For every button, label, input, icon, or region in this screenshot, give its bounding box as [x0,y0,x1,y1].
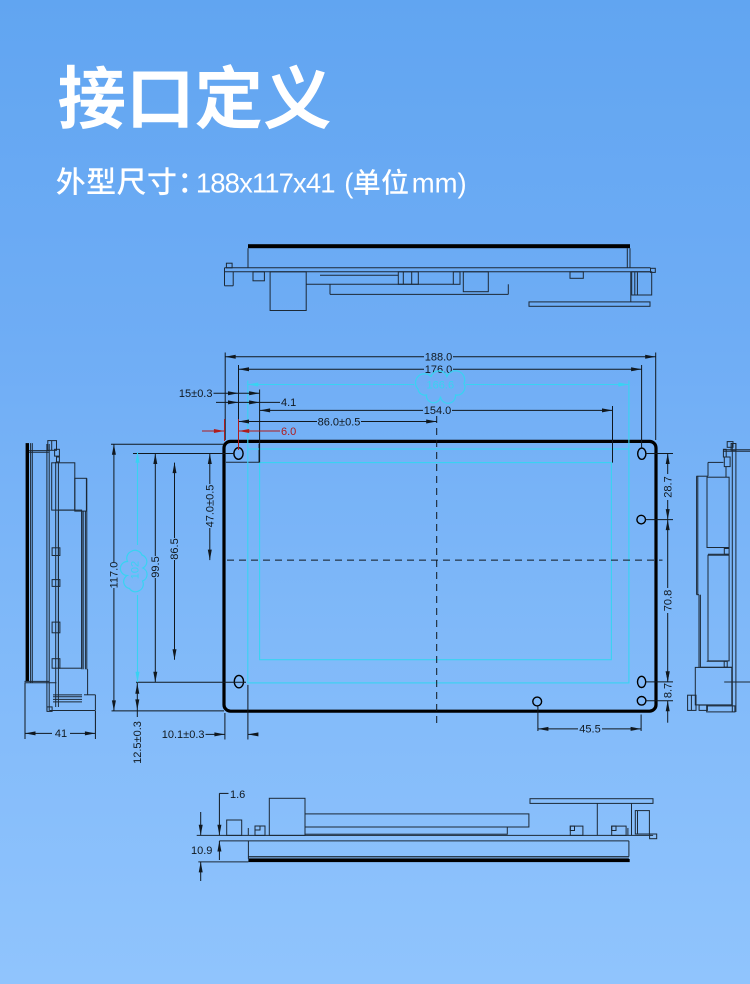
svg-text:47.0±0.5: 47.0±0.5 [205,485,217,528]
svg-text:70.8: 70.8 [662,590,674,611]
svg-text:1.6: 1.6 [230,789,245,801]
svg-text:28.7: 28.7 [662,476,674,497]
svg-text:154.0: 154.0 [424,405,452,417]
svg-text:45.5: 45.5 [579,724,600,736]
svg-text:8.7: 8.7 [662,683,674,698]
svg-text:102: 102 [130,561,142,579]
svg-text:166.6: 166.6 [427,379,455,391]
svg-text:4.1: 4.1 [281,397,296,409]
svg-text:86.5: 86.5 [169,538,181,559]
svg-text:86.0±0.5: 86.0±0.5 [318,416,361,428]
svg-text:6.0: 6.0 [281,426,296,438]
svg-text:(: ( [344,168,353,199]
svg-text:41: 41 [55,728,67,740]
svg-text:12.5±0.3: 12.5±0.3 [132,721,144,764]
svg-text:15±0.3: 15±0.3 [179,388,213,400]
svg-text:mm): mm) [412,168,467,199]
svg-text:188x117x41: 188x117x41 [196,168,335,199]
svg-text:99.5: 99.5 [150,556,162,577]
svg-text:117.0: 117.0 [109,562,121,589]
svg-text:188.0: 188.0 [425,352,453,364]
svg-text:10.1±0.3: 10.1±0.3 [162,729,205,741]
svg-text:10.9: 10.9 [191,845,212,857]
